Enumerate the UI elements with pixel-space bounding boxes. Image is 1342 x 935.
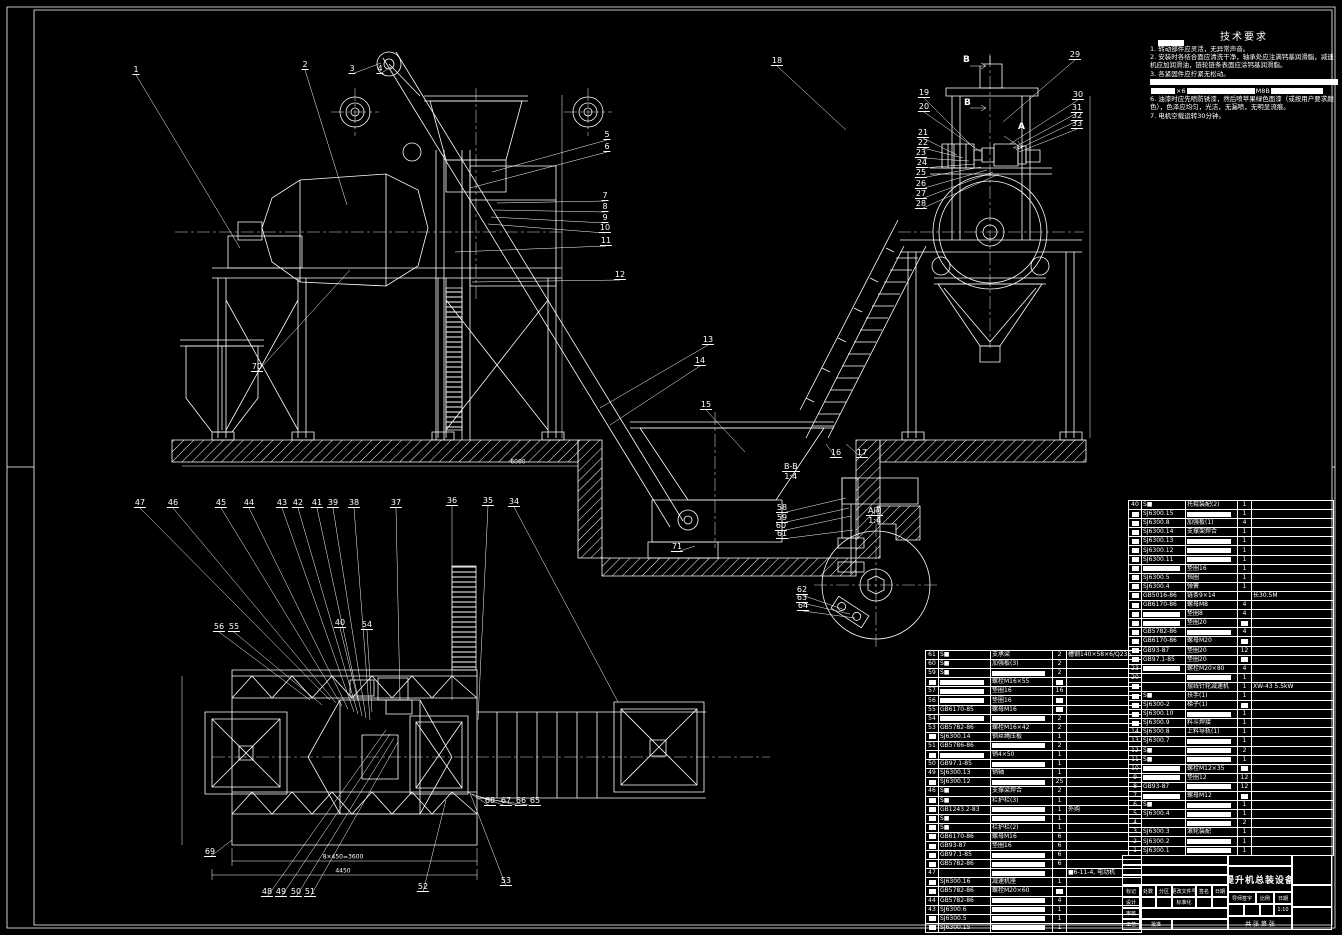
bom-row: GB6170-86螺母M84 xyxy=(1129,600,1333,609)
bom-cell: SJ6300.16 xyxy=(938,878,990,886)
bom-row: SJ6300.16减速机座1 xyxy=(926,877,1141,886)
bom-cell xyxy=(1129,583,1141,591)
bom-cell: S■ xyxy=(1141,501,1185,509)
bom-row: 销4×501 xyxy=(926,750,1141,759)
bom-cell: 栏护栏(3) xyxy=(990,797,1052,805)
bom-cell: SJ6300.3 xyxy=(1141,828,1185,836)
callout-balloon-44: 44 xyxy=(243,498,255,508)
bom-cell: SJ6300.13 xyxy=(1141,537,1185,545)
bom-cell: SJ6300.5 xyxy=(938,915,990,923)
bom-cell xyxy=(1251,665,1333,673)
bom-cell xyxy=(938,687,990,695)
bom-cell: 摆线针轮减速机 xyxy=(1185,683,1237,691)
bom-cell xyxy=(1185,801,1237,809)
bom-row: 57垫圈1616 xyxy=(926,686,1141,695)
bom-cell xyxy=(1185,674,1237,682)
bom-cell: 4 xyxy=(1052,897,1066,905)
tech-requirement-line: 6. 油漆时应先喷防锈漆，然后喷苹果绿色面漆（或按用户要求颜色），色泽应均匀，光… xyxy=(1150,95,1338,111)
bom-row: SJ6300.131 xyxy=(1129,536,1333,545)
bom-cell: 1 xyxy=(1237,537,1251,545)
callout-balloon-64: 64 xyxy=(797,601,809,611)
bom-row: SJ6300.121 xyxy=(1129,545,1333,554)
tb-sheet-count: 共 张 第 张 xyxy=(1228,916,1292,930)
bom-cell xyxy=(926,778,938,786)
bom-cell: 6 xyxy=(1052,842,1066,850)
callout-balloon-34: 34 xyxy=(508,497,520,507)
bom-cell xyxy=(1052,887,1066,895)
bom-cell: 61 xyxy=(926,651,938,659)
bom-cell xyxy=(938,696,990,704)
bom-cell xyxy=(1129,647,1141,655)
tb-scale-label: 比例 xyxy=(1256,892,1274,904)
bom-row: 42 xyxy=(1129,818,1333,827)
bom-row: 3SJ6300.3滚轮装配1 xyxy=(1129,827,1333,836)
front-elevation-view xyxy=(172,52,1086,576)
bom-cell xyxy=(1237,619,1251,627)
bom-row: S■栏护栏(2)1 xyxy=(926,823,1141,832)
bom-cell: 垫圈16 xyxy=(990,696,1052,704)
bom-cell: S■ xyxy=(1141,747,1185,755)
bom-cell: 钢丝绳压板 xyxy=(990,733,1052,741)
bom-cell xyxy=(1129,565,1141,573)
callout-balloon-51: 51 xyxy=(304,887,316,897)
bom-cell xyxy=(1141,683,1185,691)
bom-cell: 1 xyxy=(1237,801,1251,809)
bom-row: 7螺母M12 xyxy=(1129,791,1333,800)
bom-cell: 20 xyxy=(1129,674,1141,682)
bom-cell xyxy=(990,897,1052,905)
bom-row: 14SJ6300.8上料导轨(1)1 xyxy=(1129,727,1333,736)
side-elevation-view xyxy=(800,54,1090,440)
callout-balloon-56: 56 xyxy=(213,622,225,632)
callout-balloon-9: 9 xyxy=(601,213,608,223)
bom-cell xyxy=(1251,728,1333,736)
bom-cell: 12 xyxy=(1129,747,1141,755)
bom-cell: SJ6300.12 xyxy=(1141,546,1185,554)
bom-cell xyxy=(990,669,1052,677)
bom-cell: 16 xyxy=(1052,687,1066,695)
bom-cell: 2 xyxy=(1052,742,1066,750)
bom-cell xyxy=(1052,696,1066,704)
bom-cell xyxy=(1251,792,1333,800)
bom-cell xyxy=(1251,819,1333,827)
bom-cell: 螺母M16 xyxy=(990,833,1052,841)
bom-cell: 53 xyxy=(926,724,938,732)
callout-balloon-30: 30 xyxy=(1072,90,1084,100)
bom-cell: GB97.1-85 xyxy=(938,851,990,859)
bom-cell xyxy=(1251,601,1333,609)
bom-cell: SJ6300.8 xyxy=(1141,519,1185,527)
bom-cell: 4 xyxy=(1129,819,1141,827)
bom-cell: GB5782-86 xyxy=(938,860,990,868)
bom-row: GB1243.2-831外购 xyxy=(926,805,1141,814)
bom-row: 60S■加强板(3)2 xyxy=(926,659,1141,668)
bom-cell xyxy=(1129,519,1141,527)
bom-cell: SJ6300.15 xyxy=(1141,510,1185,518)
bom-row: SJ6300.8加强板(1)4 xyxy=(1129,518,1333,527)
tech-requirement-line xyxy=(1150,79,1338,85)
bom-cell xyxy=(990,742,1052,750)
bom-cell xyxy=(926,851,938,859)
bom-row: 5SJ6300.41 xyxy=(1129,809,1333,818)
tech-requirement-line: 1. 转动部件应灵活，无异常声音。 xyxy=(1150,45,1338,53)
bom-cell xyxy=(1185,546,1237,554)
callout-balloon-70: 70 xyxy=(251,362,263,372)
bom-cell: 1 xyxy=(1237,710,1251,718)
bom-cell: 1 xyxy=(1237,528,1251,536)
bom-cell: 1 xyxy=(1052,769,1066,777)
bom-cell: 螺母M12 xyxy=(1185,792,1237,800)
bom-cell xyxy=(1129,637,1141,645)
bom-cell xyxy=(1251,774,1333,782)
bom-cell xyxy=(1141,674,1185,682)
bom-row: GB97.1-85垫圈20 xyxy=(1129,655,1333,664)
callout-balloon-28: 28 xyxy=(915,199,927,209)
cut-letter-b-bottom: B xyxy=(964,98,971,108)
bom-cell xyxy=(1129,592,1141,600)
bom-cell xyxy=(1129,556,1141,564)
callout-balloon-71: 71 xyxy=(671,542,683,552)
bom-cell: 8 xyxy=(1129,783,1141,791)
bom-cell xyxy=(938,869,990,877)
tb-h-zone: 分区 xyxy=(1156,885,1172,897)
bom-row: GB5782-866 xyxy=(926,859,1141,868)
callout-balloon-16: 16 xyxy=(830,448,842,458)
bom-row: SJ6300.14钢丝绳压板1 xyxy=(926,732,1141,741)
view-a-label: A向1:4 xyxy=(866,506,883,525)
bom-cell: 1 xyxy=(1052,733,1066,741)
bom-cell xyxy=(1141,819,1185,827)
bom-cell xyxy=(1251,810,1333,818)
callout-balloon-49: 49 xyxy=(275,887,287,897)
bom-cell: 垫圈8 xyxy=(1185,610,1237,618)
bom-cell xyxy=(1251,747,1333,755)
bom-cell: S■ xyxy=(938,824,990,832)
bom-cell xyxy=(990,860,1052,868)
callout-balloon-8: 8 xyxy=(601,202,608,212)
bom-cell: SJ6300.10 xyxy=(1141,710,1185,718)
bom-cell: 1 xyxy=(1052,924,1066,932)
callout-balloon-4: 4 xyxy=(376,64,383,74)
bom-cell: 上料导轨(1) xyxy=(1185,728,1237,736)
bom-row: GB97.1-856 xyxy=(926,850,1141,859)
bom-cell: 14 xyxy=(1129,728,1141,736)
bom-cell xyxy=(1251,837,1333,845)
bom-cell: GB6170-86 xyxy=(938,833,990,841)
section-bb-label: B-B1:4 xyxy=(782,462,800,481)
bom-cell xyxy=(926,678,938,686)
bom-cell: 加强板(3) xyxy=(990,660,1052,668)
bom-cell xyxy=(1129,528,1141,536)
bom-cell: 25 xyxy=(1052,778,1066,786)
callout-balloon-6: 6 xyxy=(603,142,610,152)
bom-cell xyxy=(926,751,938,759)
bom-cell: 12 xyxy=(1237,783,1251,791)
bom-row: SJ6300.14支撑架焊合1 xyxy=(1129,527,1333,536)
bom-cell xyxy=(1052,706,1066,714)
bom-cell: 1 xyxy=(1052,760,1066,768)
bom-cell xyxy=(1129,601,1141,609)
tb-check: 审核 xyxy=(1122,908,1140,919)
callout-balloon-12: 12 xyxy=(614,270,626,280)
tech-requirement-line: 3. 各紧固件应拧紧无松动。 xyxy=(1150,70,1338,78)
bom-cell xyxy=(1129,710,1141,718)
bom-cell xyxy=(1052,869,1066,877)
bom-cell xyxy=(926,842,938,850)
bom-cell: GB5782-86 xyxy=(1141,628,1185,636)
bom-row: 201 xyxy=(1129,673,1333,682)
bom-cell xyxy=(938,715,990,723)
callout-balloon-10: 10 xyxy=(599,223,611,233)
bom-row: 6S■1 xyxy=(1129,800,1333,809)
bom-row: GB93-87垫圈2012 xyxy=(1129,646,1333,655)
callout-balloon-19: 19 xyxy=(918,88,930,98)
bom-row: 摆线针轮减速机1XW-43 5.5kW xyxy=(1129,682,1333,691)
bom-cell: GB5782-86 xyxy=(938,724,990,732)
bom-cell xyxy=(1052,678,1066,686)
bom-cell: 59 xyxy=(926,669,938,677)
bom-row: SJ6300.151 xyxy=(1129,509,1333,518)
callout-balloon-15: 15 xyxy=(700,400,712,410)
bom-cell: GB93-87 xyxy=(1141,783,1185,791)
bom-row: SJ6300.111 xyxy=(1129,555,1333,564)
bom-cell xyxy=(1251,765,1333,773)
bom-cell: S■ xyxy=(1141,801,1185,809)
bom-cell: 1 xyxy=(1052,915,1066,923)
bom-row: 9垫圈1212 xyxy=(1129,773,1333,782)
cad-drawing-sheet: 技术要求 1. 转动部件应灵活，无异常声音。2. 安装时各结合面应清洗干净，轴承… xyxy=(0,0,1342,935)
bom-cell: 螺栓M12×35 xyxy=(1185,765,1237,773)
callout-balloon-41: 41 xyxy=(311,498,323,508)
tb-scale-value: 1:10 xyxy=(1274,904,1292,916)
bom-row: GB93-87垫圈166 xyxy=(926,841,1141,850)
bom-cell: 梯子(1) xyxy=(1185,701,1237,709)
bom-cell xyxy=(990,869,1052,877)
bom-cell xyxy=(1237,701,1251,709)
bom-cell: 1 xyxy=(1237,556,1251,564)
bom-cell: 垫圈20 xyxy=(1185,619,1237,627)
callout-balloon-14: 14 xyxy=(694,356,706,366)
bom-cell xyxy=(990,778,1052,786)
bom-cell: 6 xyxy=(1129,801,1141,809)
plan-view xyxy=(182,566,770,880)
callout-balloon-48: 48 xyxy=(261,887,273,897)
bom-cell: 12 xyxy=(1237,774,1251,782)
bom-cell: 销轴 xyxy=(990,769,1052,777)
bom-cell: S■ xyxy=(938,797,990,805)
bom-cell xyxy=(1251,519,1333,527)
bom-cell xyxy=(926,815,938,823)
bom-row: 43SJ6300.61 xyxy=(926,905,1141,914)
bom-cell xyxy=(926,806,938,814)
bom-row: SJ6300.5挡圈1 xyxy=(1129,573,1333,582)
callout-balloon-42: 42 xyxy=(292,498,304,508)
callout-balloon-58: 58 xyxy=(776,503,788,513)
bom-cell: 2 xyxy=(1129,837,1141,845)
bom-cell xyxy=(1251,692,1333,700)
callout-balloon-18: 18 xyxy=(771,56,783,66)
bom-row: GB6170-86螺母M20 xyxy=(1129,636,1333,645)
bom-row: 螺栓M16×55 xyxy=(926,677,1141,686)
bom-cell xyxy=(1251,847,1333,855)
bom-cell: 1 xyxy=(1237,565,1251,573)
bom-cell: 1 xyxy=(1052,797,1066,805)
bom-cell xyxy=(990,906,1052,914)
bom-cell: 1 xyxy=(1237,674,1251,682)
bom-cell xyxy=(1141,565,1185,573)
tb-h-mark: 标记 xyxy=(1122,885,1140,897)
bom-cell xyxy=(1251,574,1333,582)
bom-row: 542 xyxy=(926,714,1141,723)
callout-balloon-50: 50 xyxy=(290,887,302,897)
bom-cell: 11 xyxy=(1129,756,1141,764)
bom-cell xyxy=(1185,747,1237,755)
callout-balloon-29: 29 xyxy=(1069,50,1081,60)
callout-balloon-22: 22 xyxy=(917,138,929,148)
bom-cell: 1 xyxy=(1237,583,1251,591)
bom-cell xyxy=(990,806,1052,814)
bom-cell xyxy=(1251,719,1333,727)
bom-cell: 46 xyxy=(926,787,938,795)
bom-cell: GB6170-86 xyxy=(1141,601,1185,609)
bom-row: GB5782-864 xyxy=(1129,627,1333,636)
bom-cell xyxy=(1251,501,1333,509)
bom-cell xyxy=(926,878,938,886)
bom-cell: SJ6300.11 xyxy=(1141,556,1185,564)
bom-row: 垫圈84 xyxy=(1129,609,1333,618)
bom-row: GB6170-86螺母M166 xyxy=(926,832,1141,841)
bom-cell: 1 xyxy=(1052,751,1066,759)
cut-letter-b-top: B xyxy=(963,55,970,65)
bom-cell: GB97.1-85 xyxy=(1141,656,1185,664)
bom-cell: 1 xyxy=(1237,737,1251,745)
tb-design: 设计 xyxy=(1122,897,1140,908)
bom-cell xyxy=(1251,656,1333,664)
callout-balloon-33: 33 xyxy=(1071,119,1083,129)
bom-cell xyxy=(1251,556,1333,564)
bom-cell xyxy=(938,751,990,759)
bom-cell: 栏护栏(2) xyxy=(990,824,1052,832)
callout-balloon-25: 25 xyxy=(915,168,927,178)
bom-cell: SJ6300.7 xyxy=(1141,737,1185,745)
callout-balloon-1: 1 xyxy=(132,65,139,75)
tb-h-sign: 签名 xyxy=(1196,885,1212,897)
bom-cell: 挡圈 xyxy=(1185,574,1237,582)
bom-cell xyxy=(1251,565,1333,573)
bom-cell: 螺母M20 xyxy=(1185,637,1237,645)
callout-balloon-53: 53 xyxy=(500,876,512,886)
bom-cell: 4 xyxy=(1237,628,1251,636)
bom-cell: 垫圈16 xyxy=(990,687,1052,695)
bom-cell: GB5782-86 xyxy=(938,887,990,895)
bom-row: SJ6300.51 xyxy=(926,914,1141,923)
bom-cell xyxy=(1251,583,1333,591)
bom-row: S■1 xyxy=(926,814,1141,823)
callout-balloon-36: 36 xyxy=(446,496,458,506)
bom-cell: 5 xyxy=(1129,810,1141,818)
bom-cell: 1 xyxy=(1052,815,1066,823)
bom-cell xyxy=(1129,610,1141,618)
bom-cell: S■ xyxy=(1141,756,1185,764)
bom-cell: 1 xyxy=(1237,847,1251,855)
bom-cell: 链条9×14 xyxy=(1185,592,1237,600)
bom-cell xyxy=(1141,774,1185,782)
callout-balloon-26: 26 xyxy=(915,179,927,189)
bom-cell: 6 xyxy=(1052,851,1066,859)
bom-cell xyxy=(1251,528,1333,536)
bom-cell: 1 xyxy=(1052,906,1066,914)
callout-balloon-5: 5 xyxy=(603,130,610,140)
bom-row: 53GB5782-86螺栓M16×422 xyxy=(926,723,1141,732)
bom-cell: 螺栓M16×55 xyxy=(990,678,1052,686)
bom-cell: SJ6300.9 xyxy=(1141,719,1185,727)
bom-cell xyxy=(990,924,1052,932)
bom-cell: 支撑架焊合 xyxy=(1185,528,1237,536)
callout-balloon-43: 43 xyxy=(276,498,288,508)
bom-cell xyxy=(926,887,938,895)
bom-cell: 43 xyxy=(926,906,938,914)
bom-cell xyxy=(1141,619,1185,627)
callout-balloon-67: 67 xyxy=(500,796,512,806)
bom-row: 56垫圈16 xyxy=(926,695,1141,704)
bom-cell xyxy=(1185,737,1237,745)
bom-cell: SJ6300.15 xyxy=(938,924,990,932)
bom-cell: GB5782-86 xyxy=(938,897,990,905)
tb-standard: 标准化 xyxy=(1172,897,1196,908)
tb-approve: 批准 xyxy=(1140,919,1172,930)
bom-cell xyxy=(1129,628,1141,636)
bom-cell xyxy=(1251,710,1333,718)
bom-row: 44GB5782-864 xyxy=(926,896,1141,905)
bom-cell xyxy=(1185,783,1237,791)
bom-cell: SJ6300.12 xyxy=(938,778,990,786)
view-letter-a: A xyxy=(1018,122,1025,132)
callout-balloon-55: 55 xyxy=(228,622,240,632)
bom-cell: 2 xyxy=(1052,787,1066,795)
bom-cell: 1 xyxy=(1237,828,1251,836)
tb-date-label: 日期 xyxy=(1274,892,1292,904)
bom-cell xyxy=(1185,756,1237,764)
bom-cell xyxy=(1129,683,1141,691)
bom-cell xyxy=(1251,637,1333,645)
bom-cell: 47 xyxy=(926,869,938,877)
bom-cell: GB6170-86 xyxy=(1141,637,1185,645)
bom-cell: 螺栓M20×60 xyxy=(990,887,1052,895)
tech-requirement-line: 7. 电机空载运转30分钟。 xyxy=(1150,112,1338,120)
bom-cell: 1 xyxy=(1052,806,1066,814)
callout-balloon-68: 68 xyxy=(484,796,496,806)
bom-cell: 垫圈20 xyxy=(1185,656,1237,664)
bom-cell: 垫圈16 xyxy=(1185,565,1237,573)
bom-cell xyxy=(990,851,1052,859)
callout-balloon-61: 61 xyxy=(776,529,788,539)
callout-balloon-54: 54 xyxy=(361,620,373,630)
bom-cell: SJ6300.8 xyxy=(1141,728,1185,736)
bom-cell: 长30.5M xyxy=(1251,592,1333,600)
bom-cell: 2 xyxy=(1052,651,1066,659)
bom-cell xyxy=(1251,756,1333,764)
callout-balloon-23: 23 xyxy=(915,148,927,158)
bom-cell xyxy=(1141,610,1185,618)
callout-balloon-24: 24 xyxy=(916,158,928,168)
bom-row: GB5016-86链条9×14长30.5M xyxy=(1129,591,1333,600)
bom-cell: S■ xyxy=(938,815,990,823)
bom-cell xyxy=(1185,810,1237,818)
bom-cell xyxy=(1251,510,1333,518)
bom-cell xyxy=(990,815,1052,823)
callout-balloon-7: 7 xyxy=(601,191,608,201)
bom-cell xyxy=(926,915,938,923)
